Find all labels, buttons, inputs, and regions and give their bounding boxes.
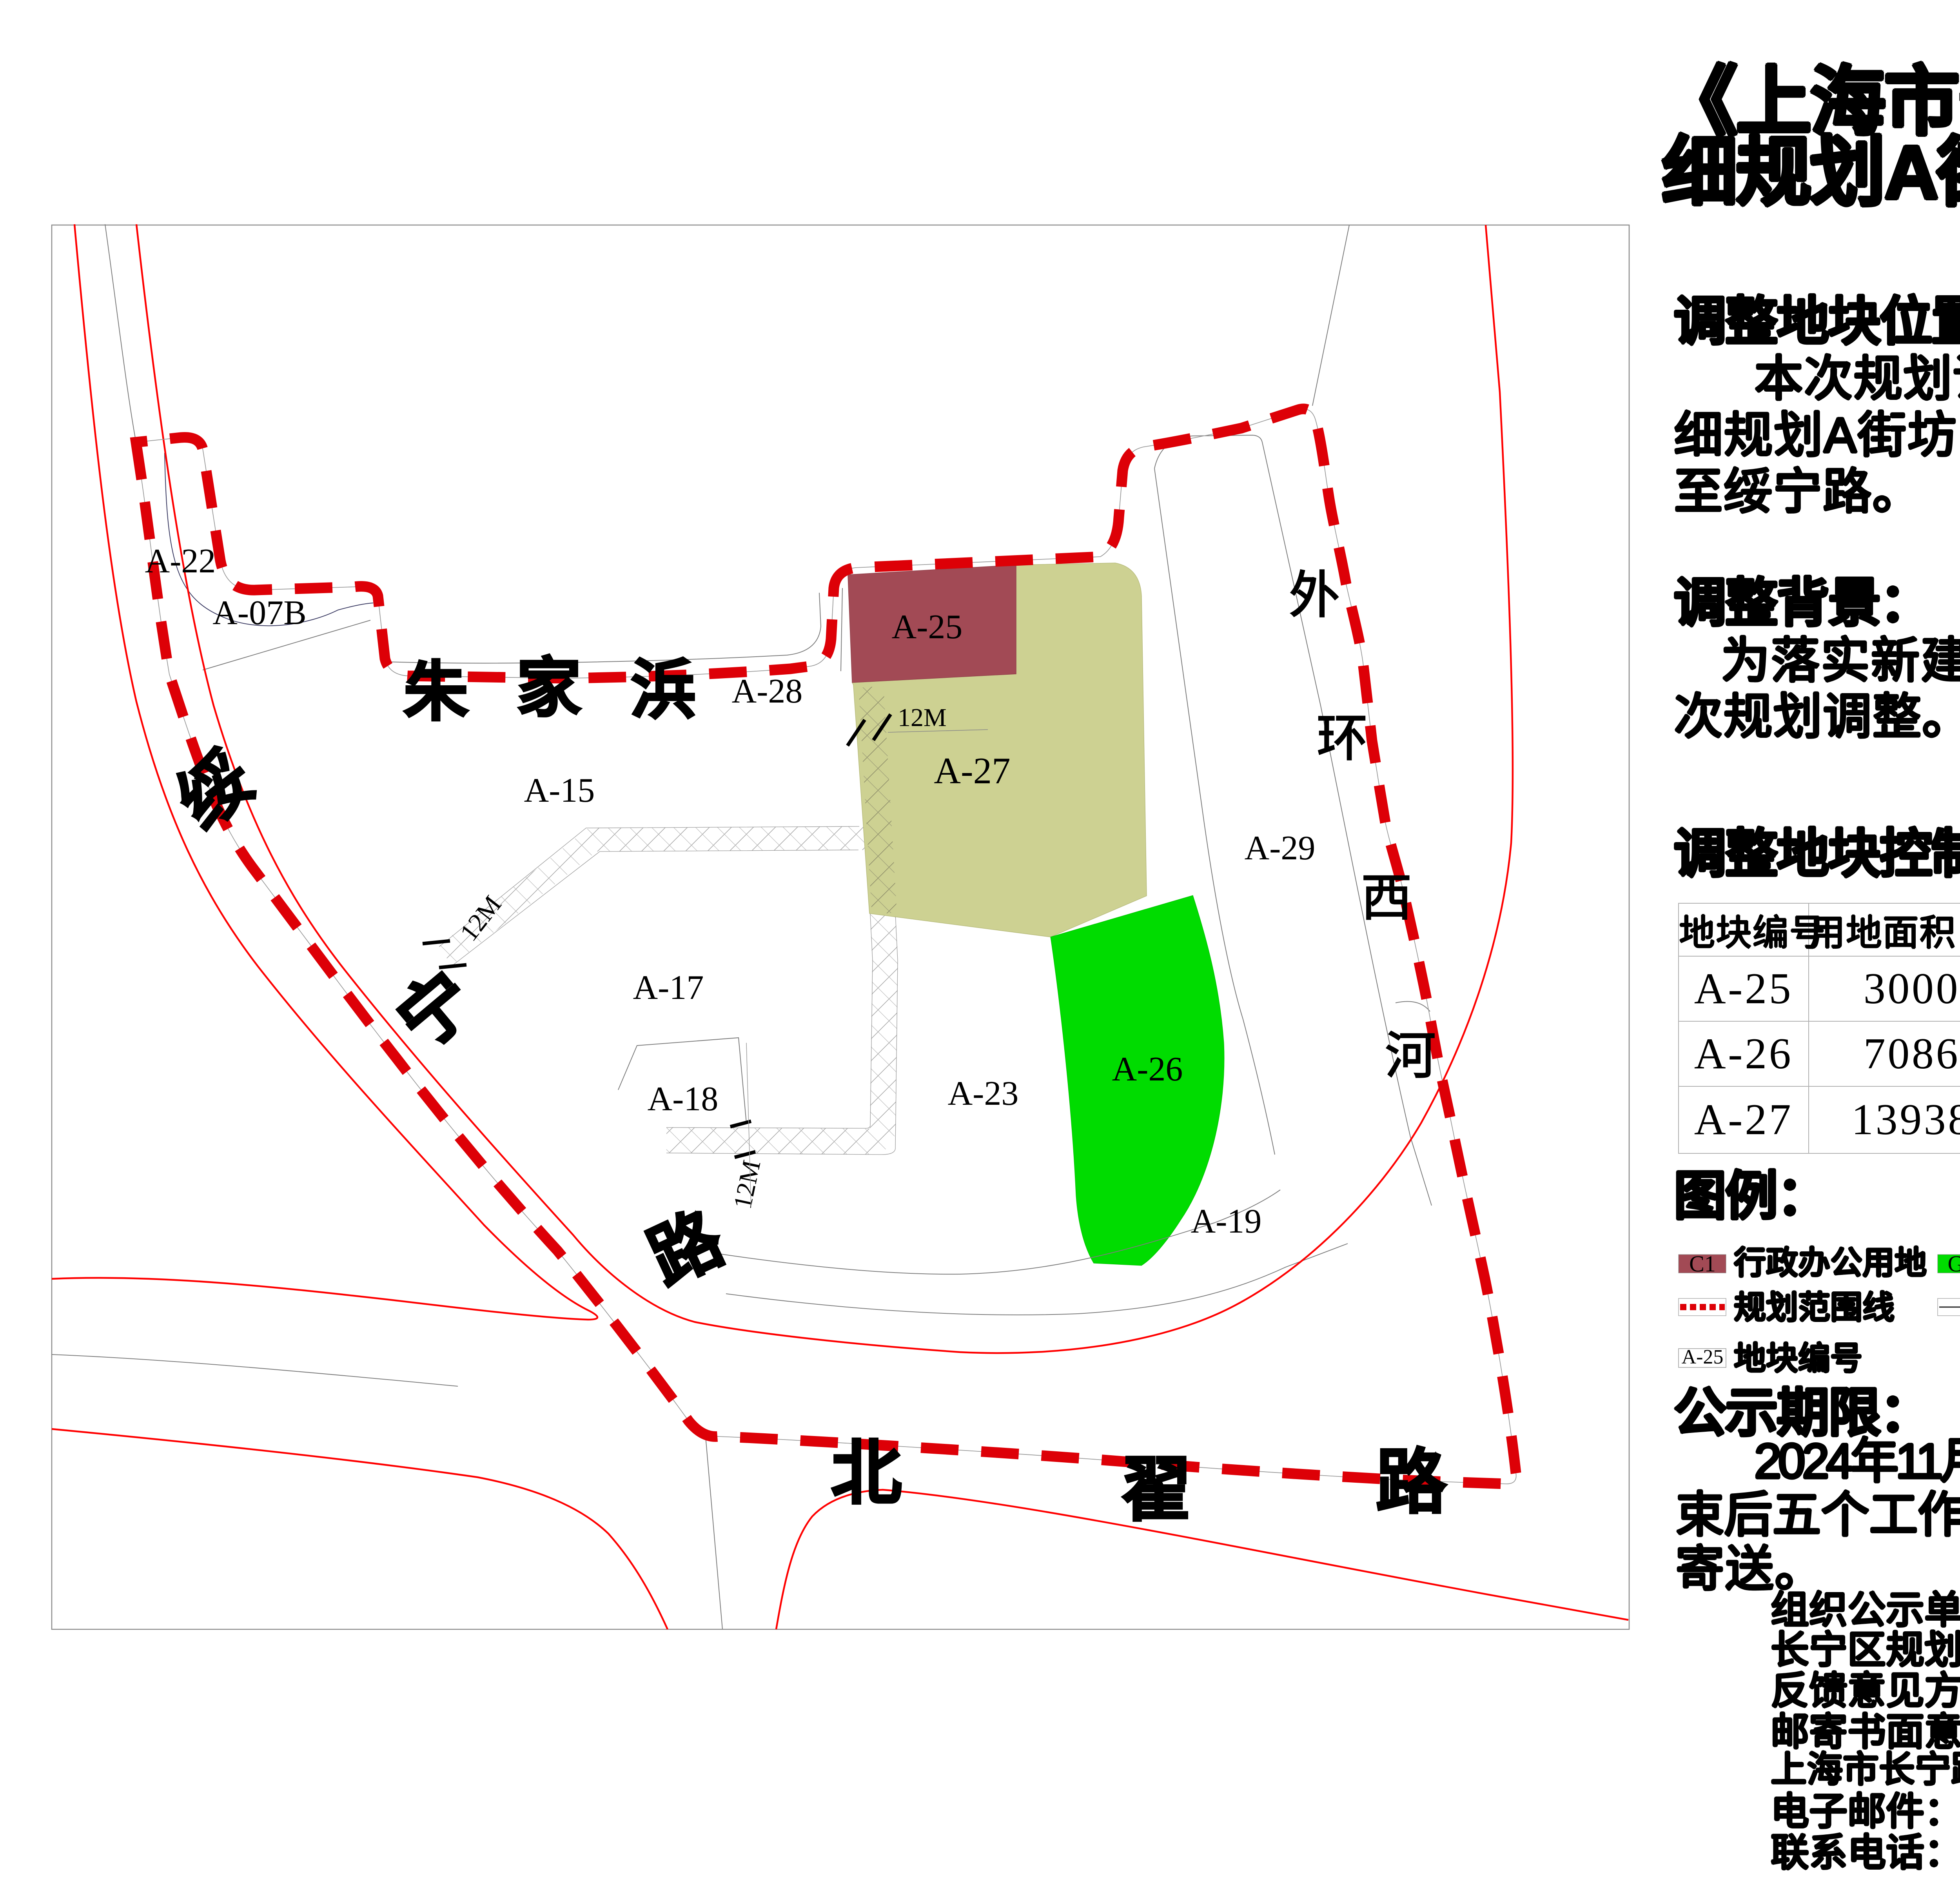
svg-text:A-17: A-17: [633, 969, 704, 1007]
svg-text:A-27: A-27: [934, 750, 1010, 792]
svg-text:翟: 翟: [1121, 1451, 1192, 1529]
svg-text:A-29: A-29: [1245, 829, 1316, 867]
svg-text:路: 路: [1376, 1443, 1447, 1522]
svg-text:G1: G1: [1948, 1251, 1960, 1276]
svg-text:A-26: A-26: [1112, 1050, 1183, 1088]
svg-text:A-23: A-23: [948, 1075, 1019, 1113]
svg-text:A-25: A-25: [892, 608, 963, 646]
svg-text:河: 河: [1385, 1027, 1436, 1084]
svg-text:A-22: A-22: [145, 542, 216, 580]
svg-text:C1: C1: [1689, 1251, 1716, 1276]
svg-text:北: 北: [831, 1434, 902, 1513]
svg-text:A-19: A-19: [1191, 1202, 1262, 1240]
svg-text:西: 西: [1361, 869, 1412, 926]
svg-text:环: 环: [1317, 710, 1368, 767]
svg-text:A-18: A-18: [648, 1080, 719, 1118]
svg-text:A-28: A-28: [732, 672, 803, 710]
svg-text:12M: 12M: [898, 703, 947, 732]
svg-text:家: 家: [517, 652, 581, 724]
svg-text:朱: 朱: [404, 656, 469, 728]
svg-text:外: 外: [1289, 566, 1340, 624]
svg-text:A-07B: A-07B: [212, 594, 307, 632]
svg-text:A-25: A-25: [1682, 1346, 1724, 1368]
svg-text:浜: 浜: [631, 654, 696, 726]
svg-text:A-15: A-15: [524, 772, 595, 810]
